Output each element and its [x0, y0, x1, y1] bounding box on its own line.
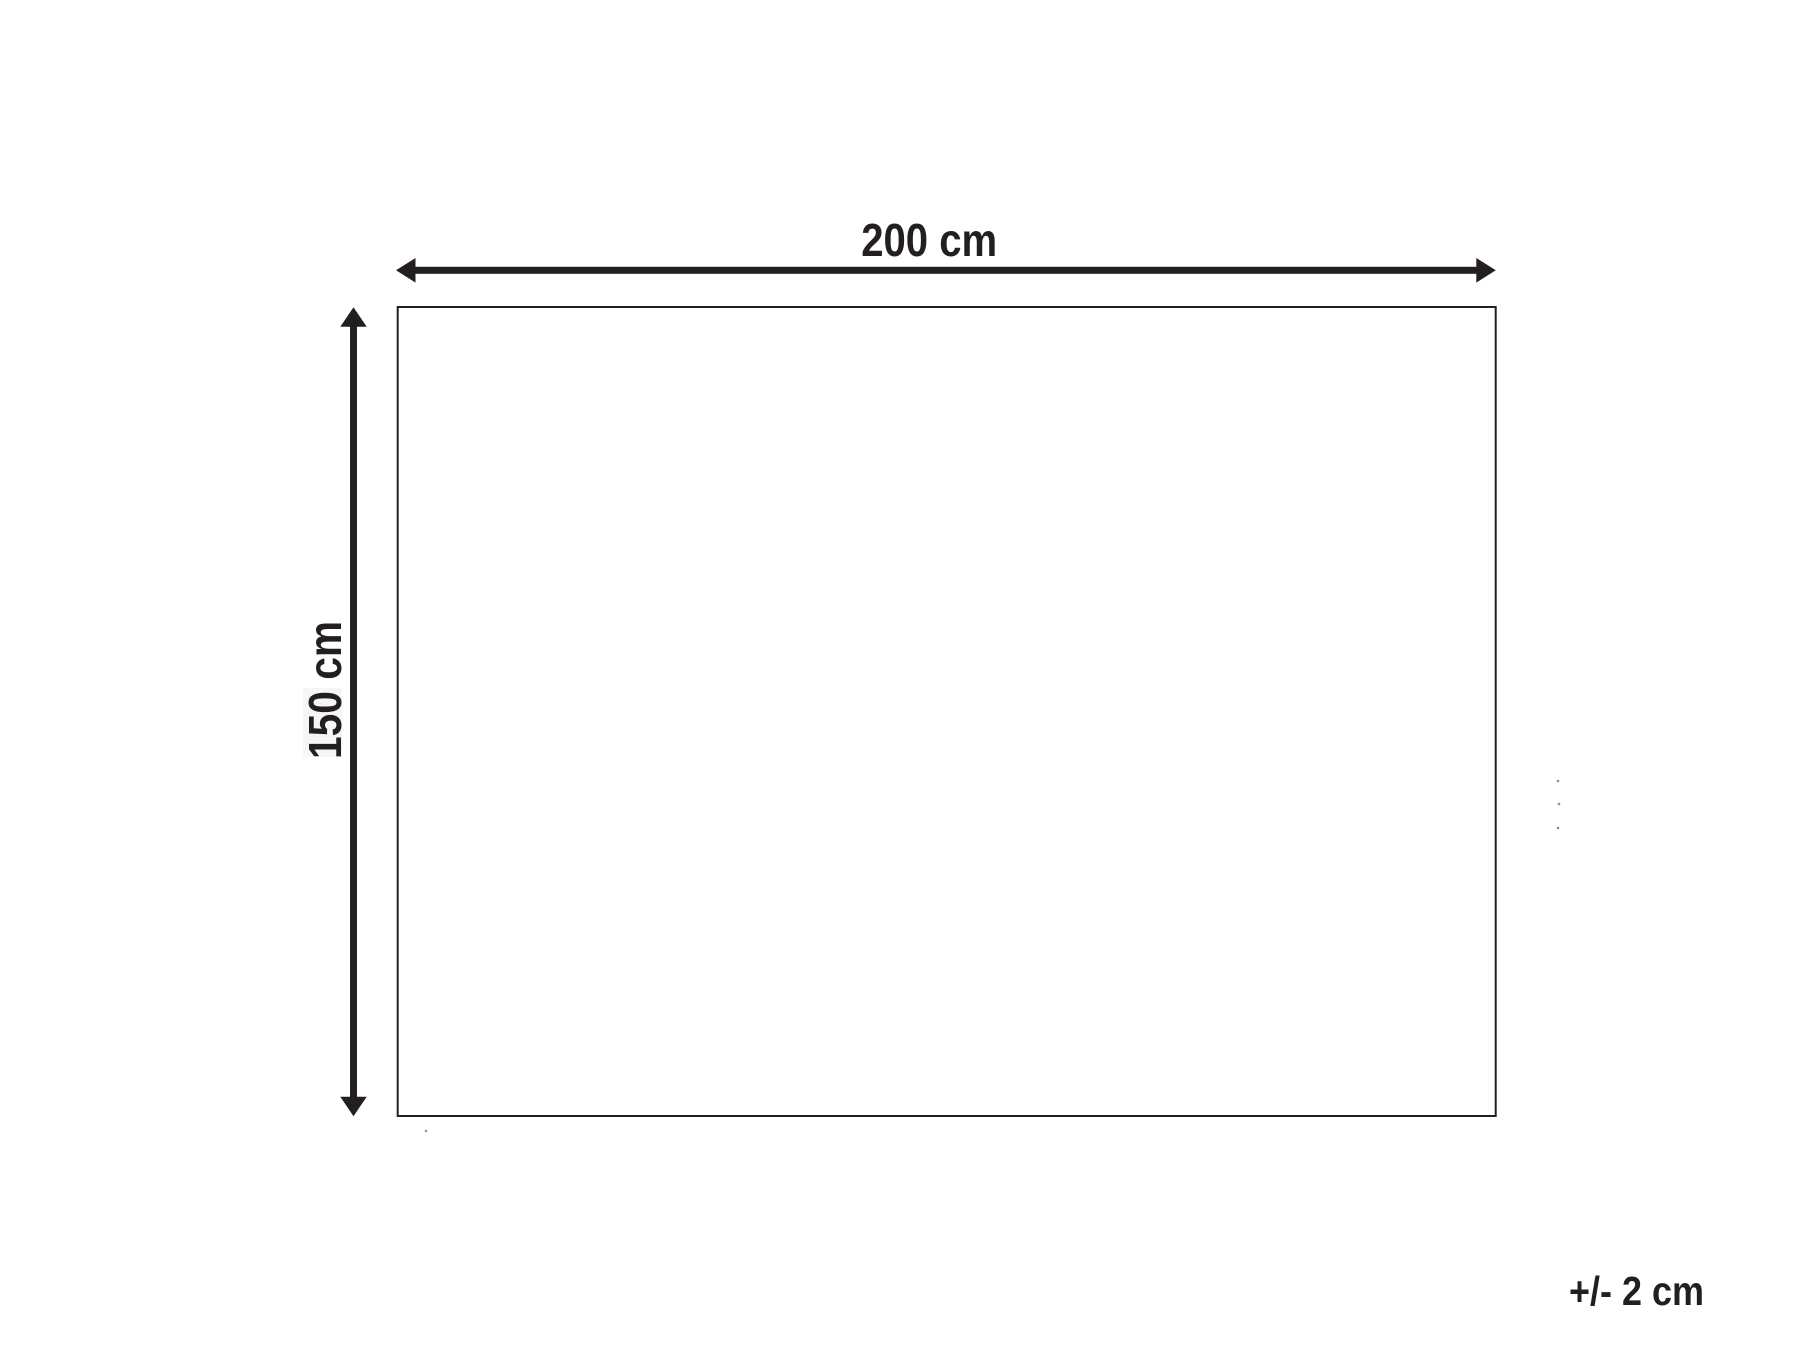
svg-text:150 cm: 150 cm — [299, 621, 351, 759]
svg-text:200 cm: 200 cm — [861, 214, 997, 266]
svg-text:+/- 2 cm: +/- 2 cm — [1569, 1268, 1704, 1314]
